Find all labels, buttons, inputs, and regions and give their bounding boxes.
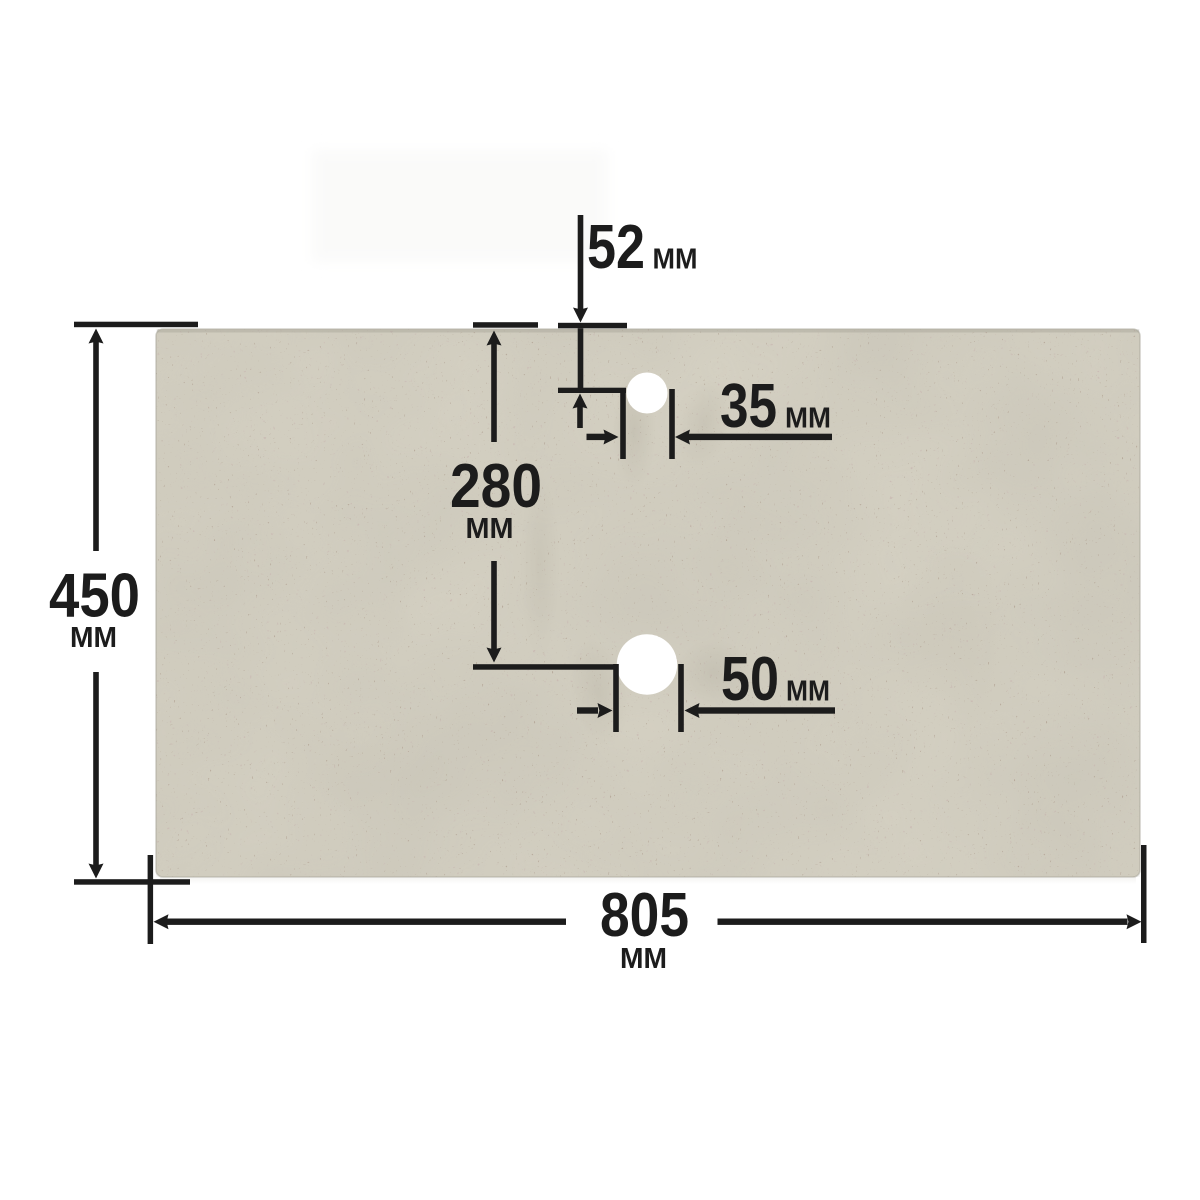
svg-text:35: 35 <box>720 372 777 441</box>
svg-text:MM: MM <box>653 244 698 276</box>
svg-text:MM: MM <box>785 403 831 435</box>
svg-text:MM: MM <box>70 622 117 654</box>
svg-text:52: 52 <box>587 213 645 282</box>
svg-text:MM: MM <box>466 513 514 545</box>
svg-text:MM: MM <box>786 676 830 708</box>
svg-text:805: 805 <box>600 881 689 950</box>
svg-text:280: 280 <box>450 452 542 521</box>
svg-text:450: 450 <box>49 562 140 631</box>
svg-text:MM: MM <box>620 943 667 975</box>
svg-text:50: 50 <box>721 645 779 714</box>
